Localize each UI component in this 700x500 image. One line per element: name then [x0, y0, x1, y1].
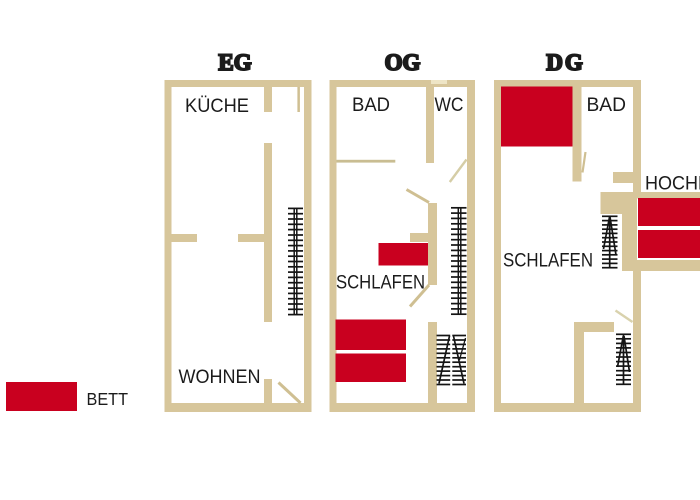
- svg-text:DG: DG: [546, 50, 585, 75]
- svg-text:OG: OG: [385, 50, 421, 75]
- svg-text:SCHLAFEN: SCHLAFEN: [336, 273, 425, 294]
- svg-text:BAD: BAD: [587, 94, 627, 116]
- svg-text:SCHLAFEN: SCHLAFEN: [503, 251, 593, 272]
- svg-text:HOCHBETT: HOCHBETT: [645, 174, 700, 195]
- svg-text:WOHNEN: WOHNEN: [179, 366, 261, 388]
- svg-text:KÜCHE: KÜCHE: [185, 95, 249, 117]
- svg-text:BAD: BAD: [352, 94, 390, 116]
- svg-text:WC: WC: [435, 94, 464, 116]
- svg-text:BETT: BETT: [87, 389, 129, 409]
- svg-text:EG: EG: [218, 50, 251, 75]
